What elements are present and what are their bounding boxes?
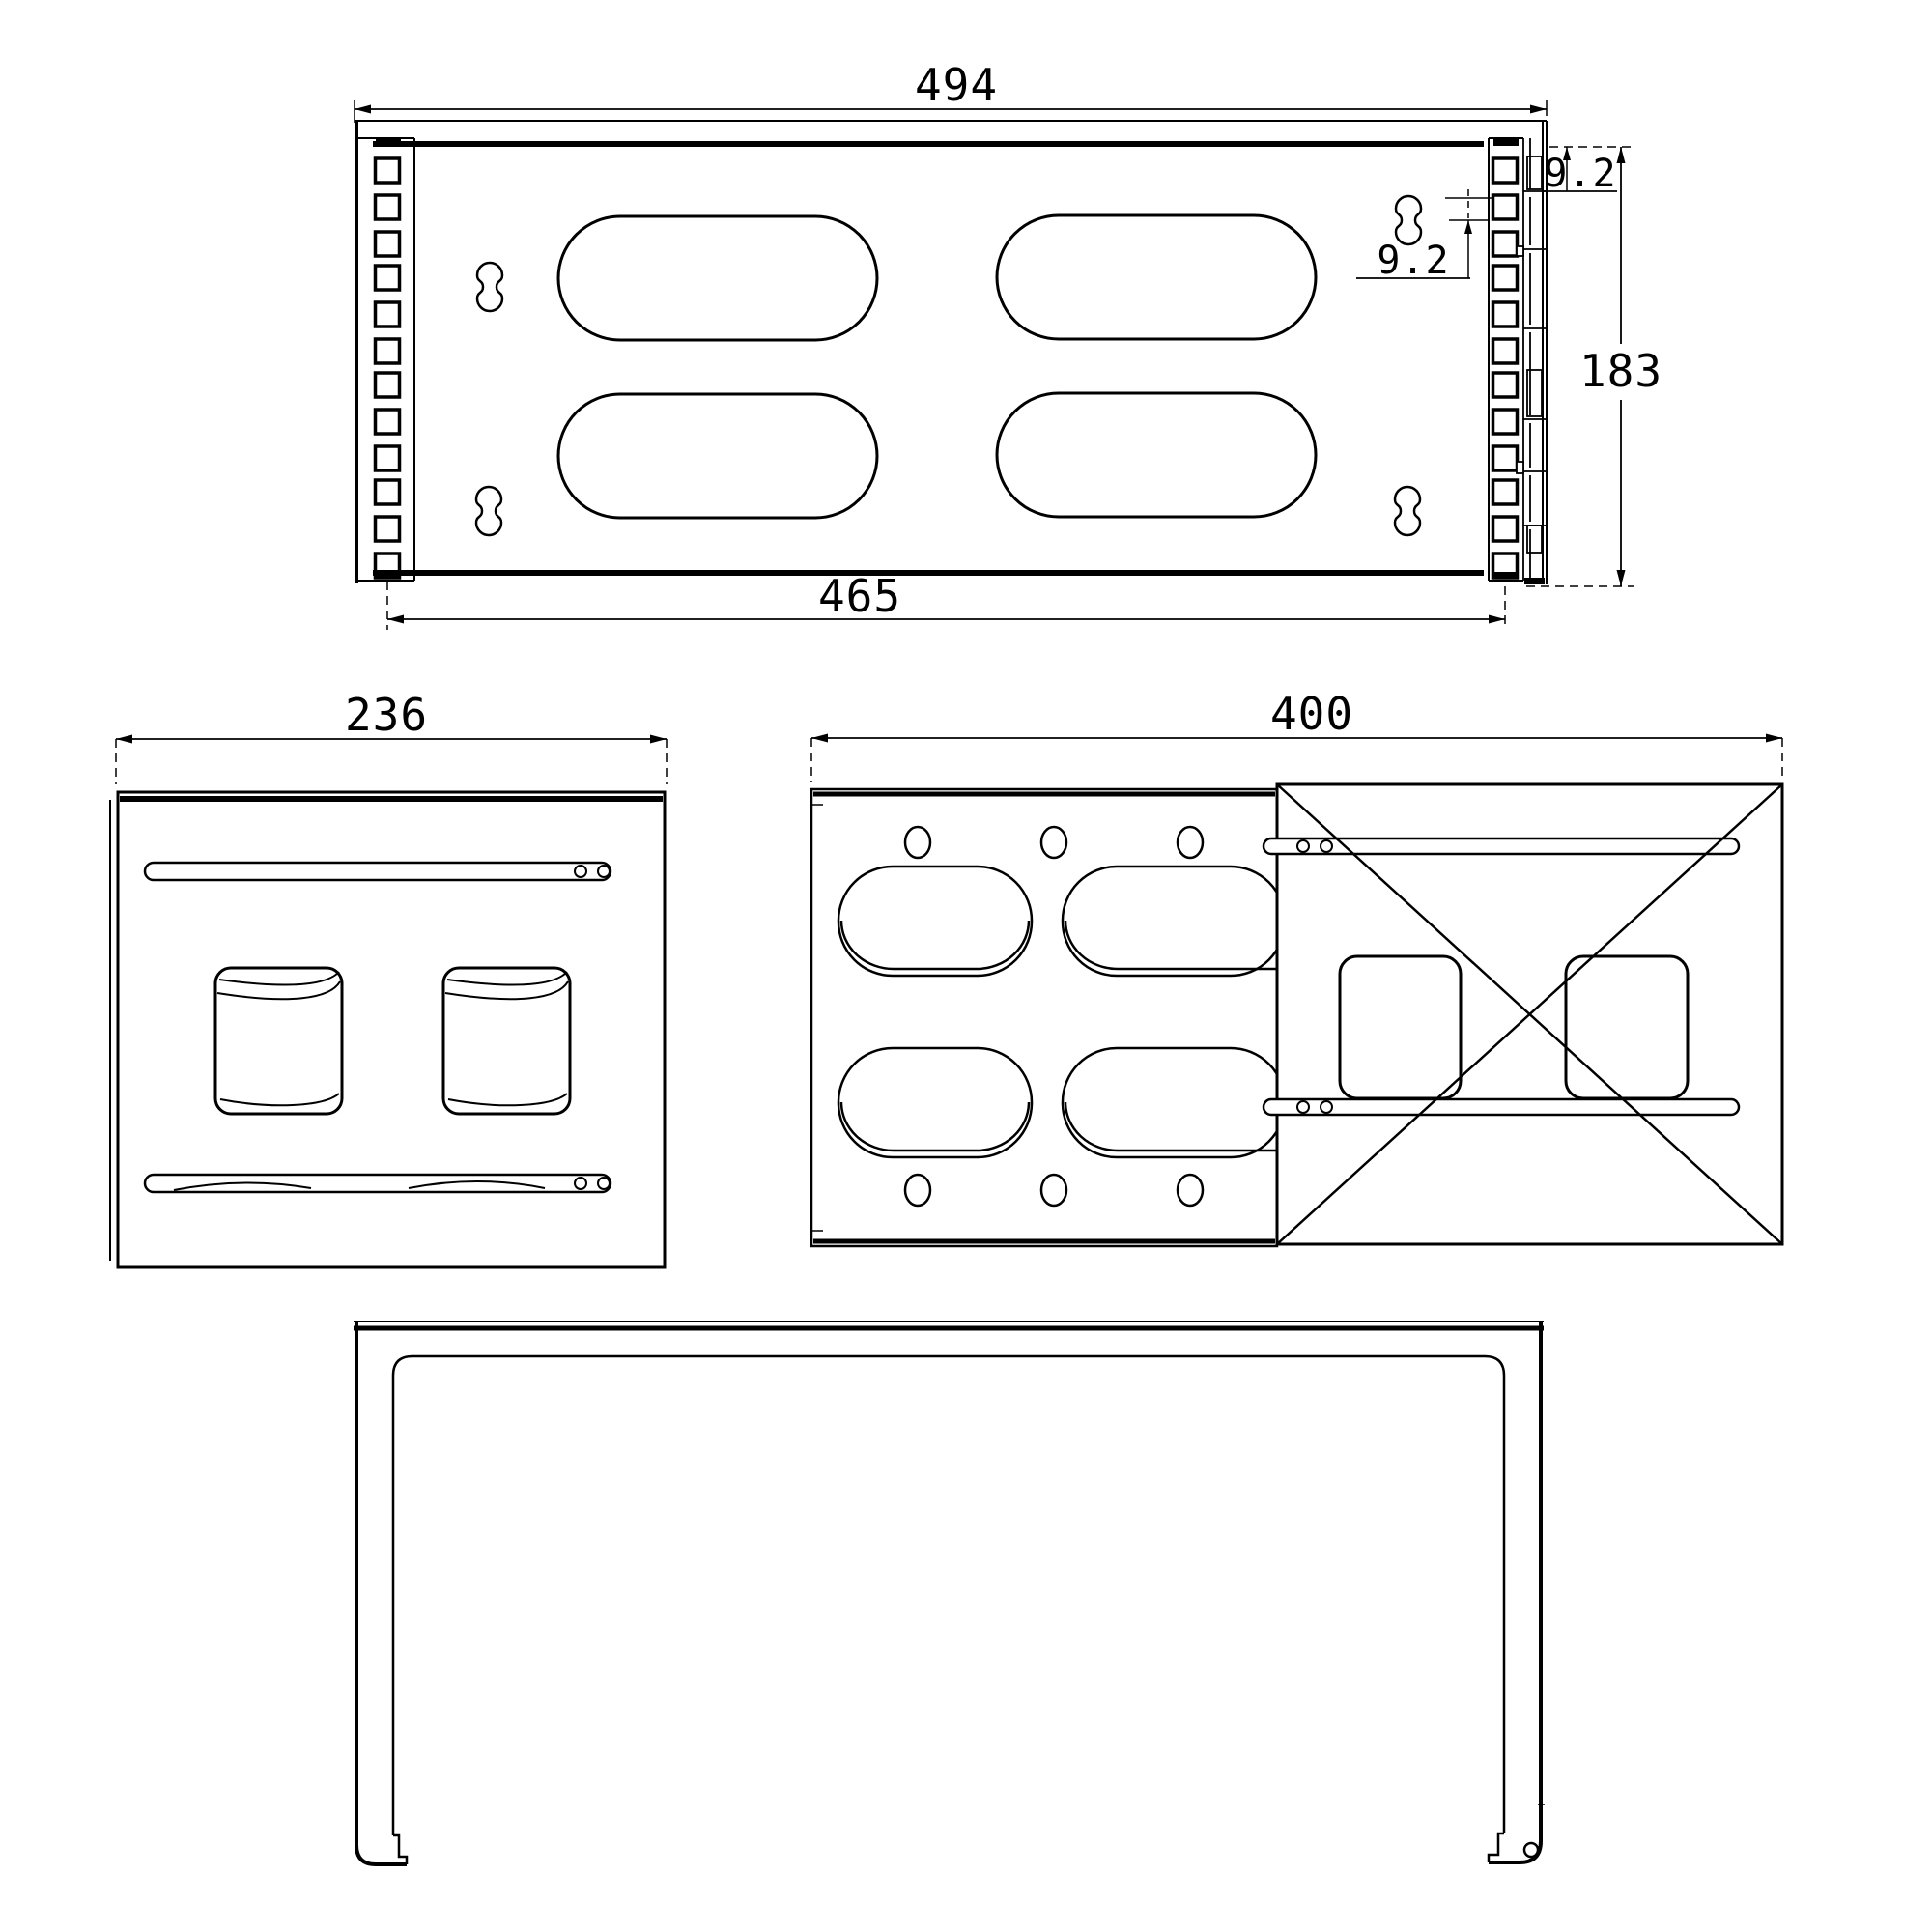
dim-text-494: 494 — [915, 59, 998, 111]
right-side-profile-strip — [1517, 121, 1547, 584]
right-rack-rail — [1489, 121, 1547, 584]
oval-cutout-bottom-right — [997, 393, 1316, 517]
side-view-bottom-slot — [145, 1175, 611, 1192]
oval-cutout-top-left — [558, 216, 877, 340]
dimension-9-2-slot: 9.2 — [1356, 189, 1492, 283]
technical-drawing-page: 494 465 183 9.2 — [0, 0, 1932, 1932]
oval-cutout-top-right — [997, 215, 1316, 339]
dimension-465: 465 — [387, 570, 1505, 630]
side-view: 236 — [110, 689, 667, 1267]
left-rack-rail — [358, 138, 414, 581]
dim-text-9-2-slot: 9.2 — [1377, 239, 1449, 283]
keyhole-slot-bottom-right — [1395, 487, 1420, 535]
dimension-9-2-flange: 9.2 — [1544, 147, 1617, 196]
front-view-right-foot — [1489, 1833, 1538, 1862]
dim-text-400: 400 — [1270, 688, 1353, 740]
left-rail-square-holes — [376, 158, 400, 578]
front-view-left-leg — [356, 1321, 407, 1864]
back-view-folded-bracket — [1264, 784, 1782, 1244]
front-view-left-foot — [393, 1835, 407, 1864]
dimension-494: 494 — [355, 59, 1547, 123]
keyhole-slot-top-left — [477, 263, 502, 311]
dim-text-9-2-flange: 9.2 — [1544, 152, 1616, 196]
dimension-400: 400 — [811, 688, 1782, 782]
keyhole-slot-top-right — [1396, 196, 1421, 244]
keyhole-slots — [476, 196, 1421, 535]
back-view-plate — [811, 789, 1277, 1246]
dim-text-236: 236 — [345, 689, 428, 741]
side-view-top-slot — [145, 863, 611, 880]
front-view-inner-contour — [393, 1356, 1504, 1835]
dim-text-183: 183 — [1579, 345, 1662, 397]
right-foot-hole — [1524, 1843, 1538, 1857]
front-view — [354, 1321, 1545, 1864]
dim-text-465: 465 — [818, 570, 901, 622]
right-rail-square-holes — [1493, 158, 1518, 578]
back-view: 400 — [811, 688, 1782, 1246]
drawing-sheet: 494 465 183 9.2 — [0, 0, 1932, 1932]
dimension-236: 236 — [116, 689, 667, 784]
oval-cutouts — [558, 215, 1316, 518]
back-view-screw-holes — [905, 827, 1203, 1206]
side-view-square-cutout-left — [215, 968, 342, 1114]
side-view-square-cutout-right — [443, 968, 570, 1114]
front-view-right-leg — [1489, 1321, 1541, 1862]
back-view-oval-cutouts — [838, 867, 1285, 1157]
keyhole-slot-bottom-left — [476, 487, 501, 535]
oval-cutout-bottom-left — [558, 394, 877, 518]
top-view: 494 465 183 9.2 — [355, 59, 1662, 630]
